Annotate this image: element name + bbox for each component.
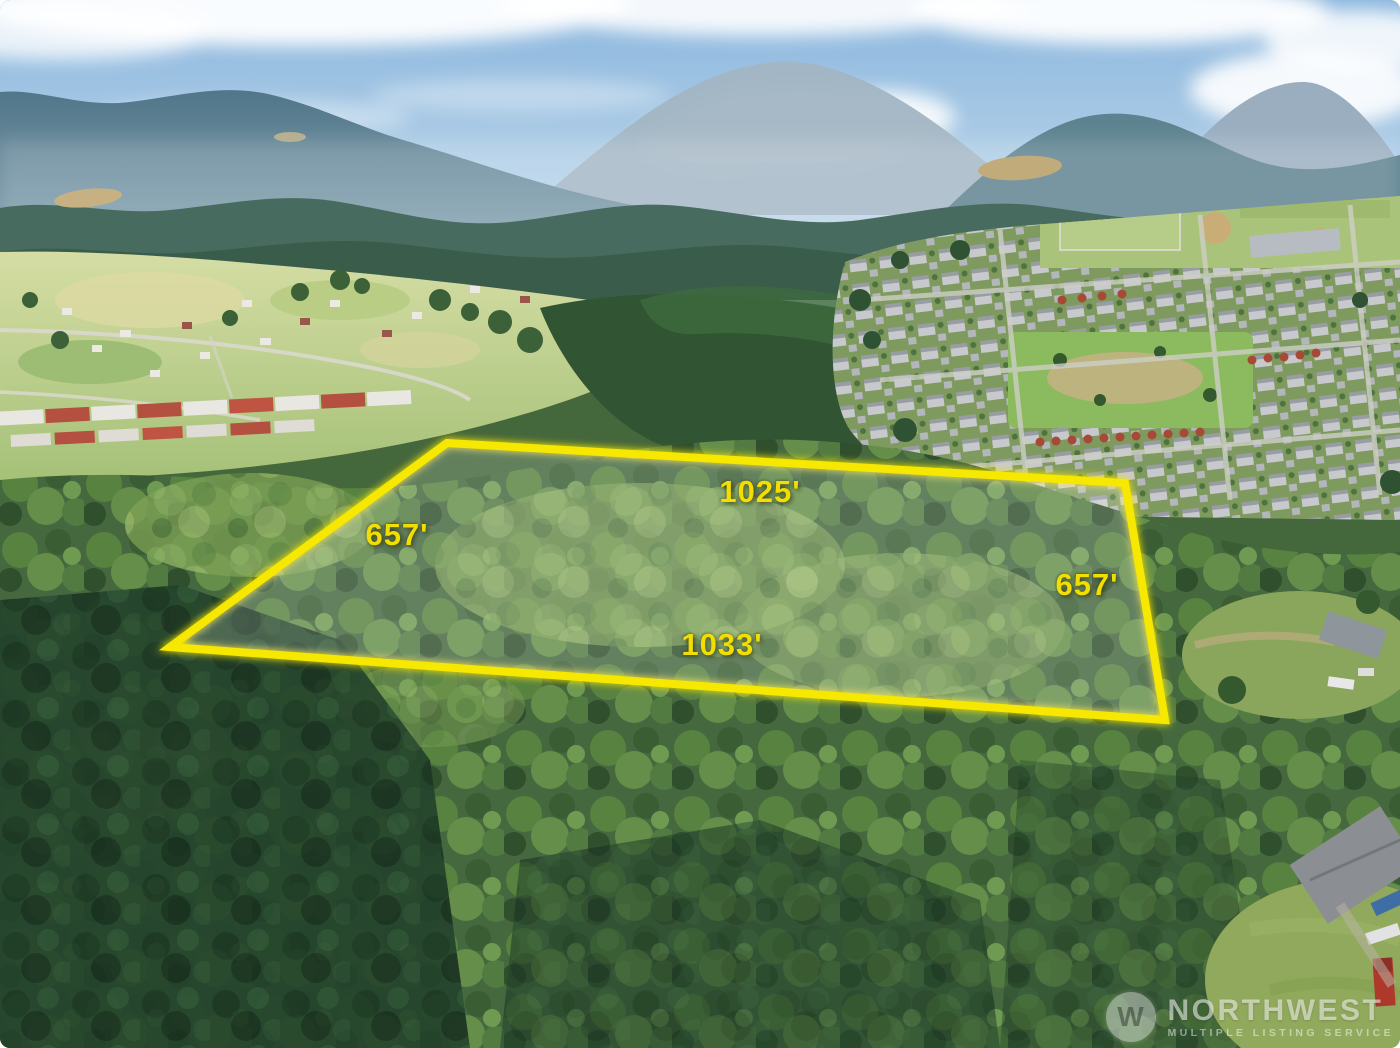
dimension-label-right: 657' [1055,567,1118,603]
aerial-photo: 1025' 657' 657' 1033' W NORTHWEST MULTIP… [0,0,1400,1048]
dimension-label-left: 657' [365,517,428,553]
dimension-label-top: 1025' [719,474,800,510]
dimension-label-bottom: 1033' [681,627,762,663]
photo-artwork [0,0,1400,1048]
